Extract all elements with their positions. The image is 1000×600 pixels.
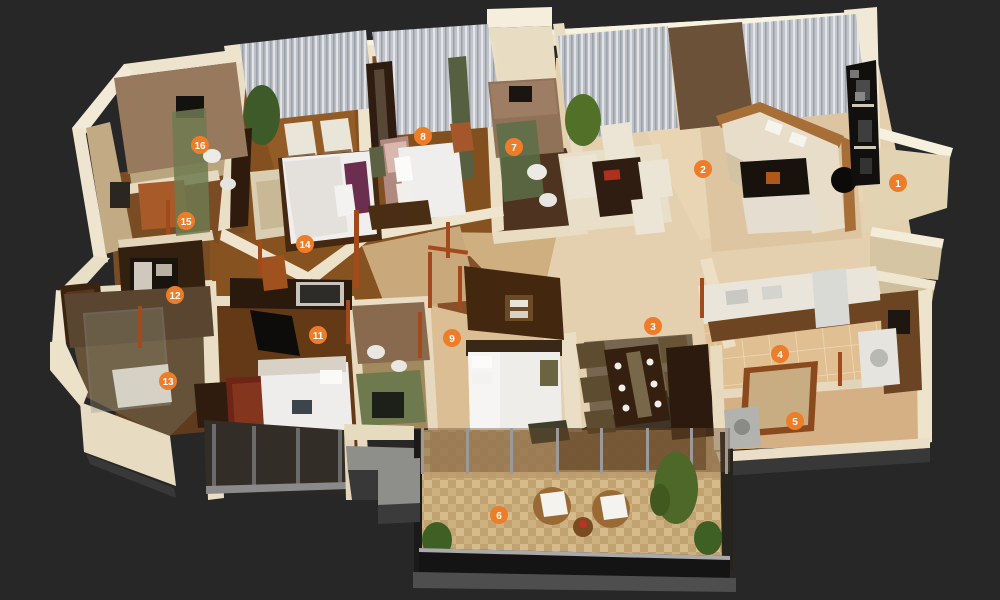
svg-text:6: 6 bbox=[496, 511, 502, 522]
svg-text:2: 2 bbox=[700, 165, 706, 176]
svg-text:3: 3 bbox=[650, 322, 656, 333]
svg-text:9: 9 bbox=[449, 334, 455, 345]
svg-text:14: 14 bbox=[299, 240, 311, 251]
svg-text:4: 4 bbox=[777, 350, 783, 361]
svg-text:16: 16 bbox=[194, 141, 206, 152]
svg-text:7: 7 bbox=[511, 143, 517, 154]
svg-text:8: 8 bbox=[420, 132, 426, 143]
svg-text:5: 5 bbox=[792, 417, 798, 428]
svg-text:1: 1 bbox=[895, 179, 901, 190]
svg-text:12: 12 bbox=[169, 291, 181, 302]
svg-text:13: 13 bbox=[162, 377, 174, 388]
svg-text:11: 11 bbox=[313, 331, 324, 342]
svg-text:15: 15 bbox=[180, 217, 192, 228]
